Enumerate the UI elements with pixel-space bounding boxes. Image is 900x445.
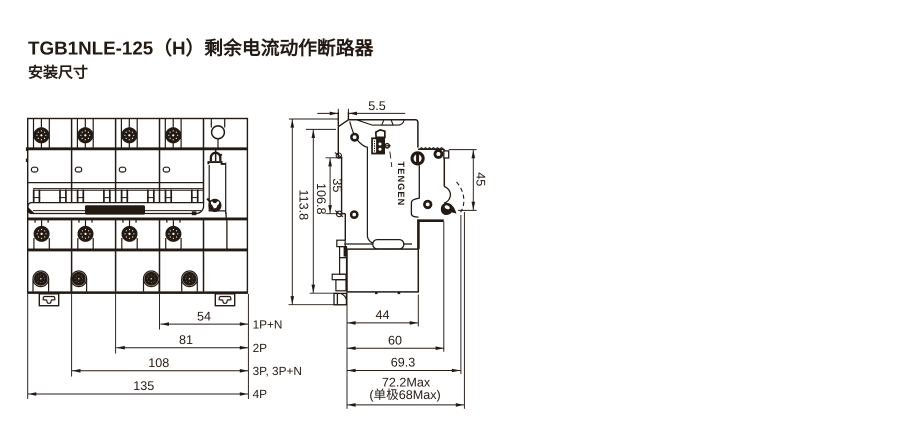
svg-text:1P+N: 1P+N [253, 317, 283, 331]
svg-text:81: 81 [179, 333, 193, 347]
svg-text:69.3: 69.3 [391, 356, 416, 370]
svg-text:54: 54 [197, 309, 211, 323]
svg-text:安装尺寸: 安装尺寸 [28, 64, 88, 81]
svg-text:44: 44 [375, 308, 389, 322]
svg-text:2P: 2P [253, 341, 268, 355]
svg-text:60: 60 [388, 333, 402, 347]
svg-text:4P: 4P [253, 387, 268, 401]
svg-text:113.8: 113.8 [297, 190, 311, 221]
svg-text:TENGEN: TENGEN [396, 162, 406, 207]
svg-text:45: 45 [474, 172, 488, 186]
svg-text:3P, 3P+N: 3P, 3P+N [253, 364, 302, 378]
svg-text:TGB1NLE-125（H）剩余电流动作断路器: TGB1NLE-125（H）剩余电流动作断路器 [28, 37, 375, 58]
svg-text:5.5: 5.5 [368, 99, 386, 113]
svg-text:108: 108 [148, 356, 169, 370]
svg-text:135: 135 [133, 379, 154, 393]
svg-text:106.8: 106.8 [314, 183, 328, 215]
svg-text:35: 35 [330, 178, 344, 192]
svg-text:(单极68Max): (单极68Max) [369, 388, 440, 402]
